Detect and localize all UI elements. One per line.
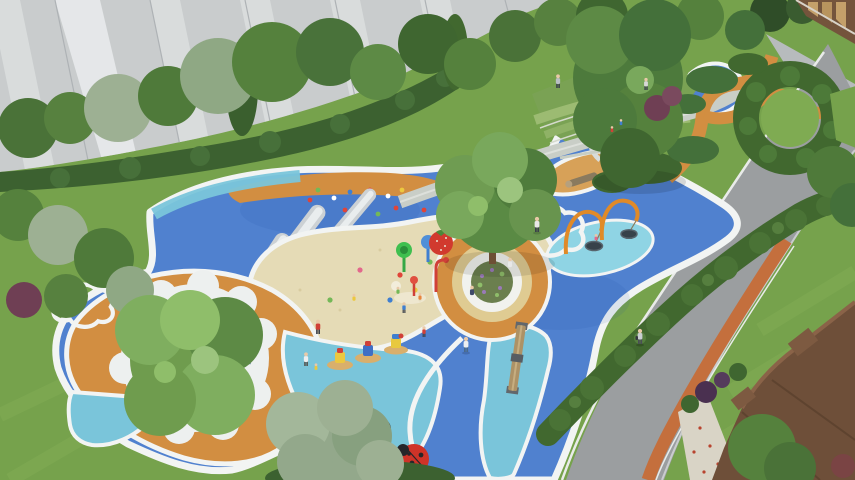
person-sitting	[508, 258, 512, 267]
playground-rendering	[0, 0, 855, 480]
hedge-ring-lawn	[761, 89, 819, 147]
nest-basket[interactable]	[621, 230, 637, 239]
child	[620, 119, 623, 125]
person-sitting	[470, 286, 474, 295]
red-shrub	[831, 454, 855, 478]
child	[611, 126, 614, 132]
planter	[471, 261, 513, 303]
child-on-swing	[595, 234, 598, 240]
child	[418, 293, 421, 300]
nest-basket[interactable]	[586, 242, 603, 251]
spray-post[interactable]	[410, 276, 418, 284]
child	[315, 363, 318, 369]
scene-canvas	[0, 0, 855, 480]
child	[396, 287, 399, 294]
big-left-tree	[115, 290, 263, 436]
child	[352, 294, 355, 301]
